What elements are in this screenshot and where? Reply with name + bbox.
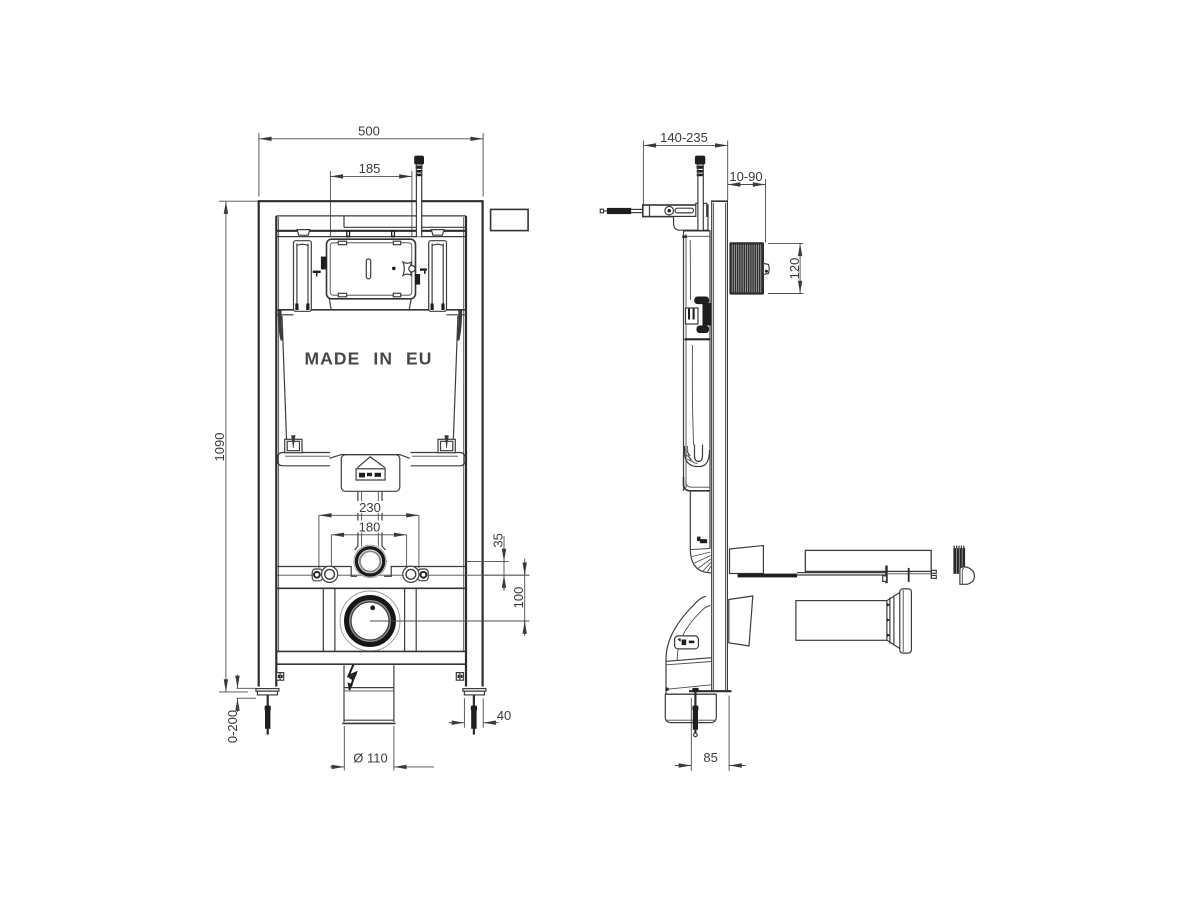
svg-text:100: 100 bbox=[511, 587, 526, 609]
svg-text:85: 85 bbox=[703, 750, 717, 765]
svg-text:120: 120 bbox=[787, 258, 802, 280]
svg-text:40: 40 bbox=[497, 708, 511, 723]
svg-text:500: 500 bbox=[358, 124, 380, 139]
svg-text:Ø 110: Ø 110 bbox=[353, 751, 387, 766]
svg-text:185: 185 bbox=[359, 161, 381, 176]
svg-text:35: 35 bbox=[491, 533, 506, 547]
svg-text:10-90: 10-90 bbox=[729, 169, 762, 184]
svg-text:180: 180 bbox=[359, 520, 381, 535]
svg-text:1090: 1090 bbox=[212, 433, 227, 462]
svg-text:230: 230 bbox=[359, 500, 381, 515]
svg-text:MADE IN EU: MADE IN EU bbox=[304, 349, 432, 369]
svg-text:0-200: 0-200 bbox=[225, 710, 240, 743]
svg-text:140-235: 140-235 bbox=[660, 130, 708, 145]
